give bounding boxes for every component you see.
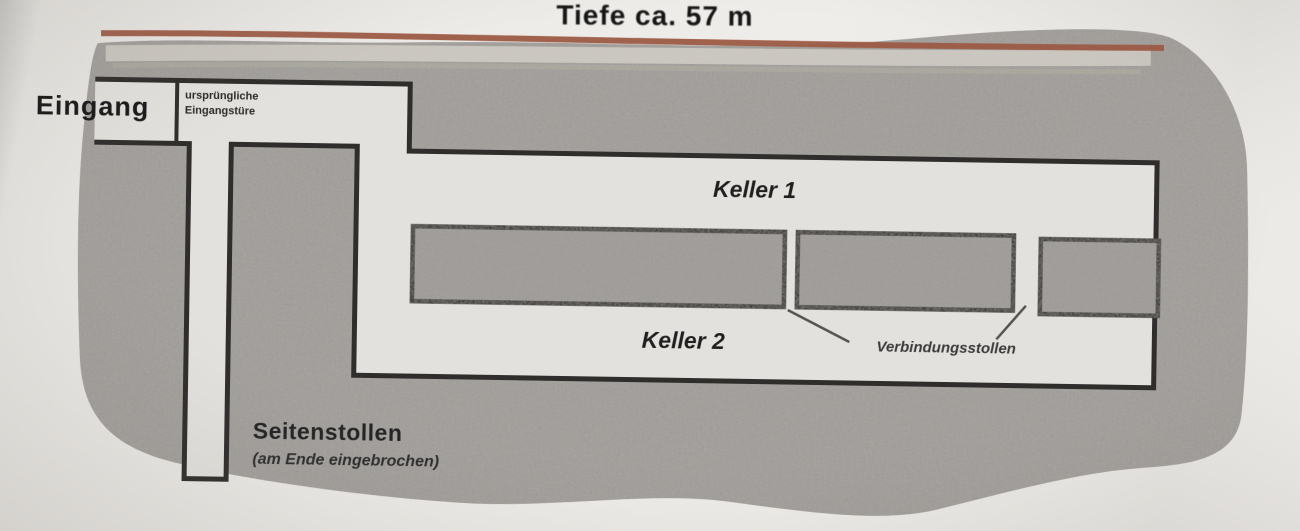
keller1-label: Keller 1 — [604, 174, 904, 206]
entrance-door-line — [176, 81, 177, 144]
plan-tilt-group: Eingang ursprüngliche Eingangstüre Kelle… — [0, 0, 1300, 531]
rock-pillar-1 — [412, 226, 785, 307]
entrance-label: Eingang — [36, 90, 150, 123]
rock-pillar-2 — [797, 232, 1014, 310]
entrance-door-note: ursprüngliche Eingangstüre — [185, 89, 305, 121]
keller2-label: Keller 2 — [533, 325, 833, 357]
entrance-door-note-line1: ursprüngliche — [185, 90, 259, 103]
scanned-tunnel-plan: Tiefe ca. 57 m — [0, 0, 1300, 531]
tunnel-plan-svg — [0, 0, 1300, 531]
entrance-door-note-line2: Eingangstüre — [185, 105, 255, 118]
side-tunnel-label: Seitenstollen — [253, 418, 403, 447]
rock-pillar-3 — [1040, 239, 1159, 316]
side-tunnel-note: (am Ende eingebrochen) — [252, 451, 439, 472]
